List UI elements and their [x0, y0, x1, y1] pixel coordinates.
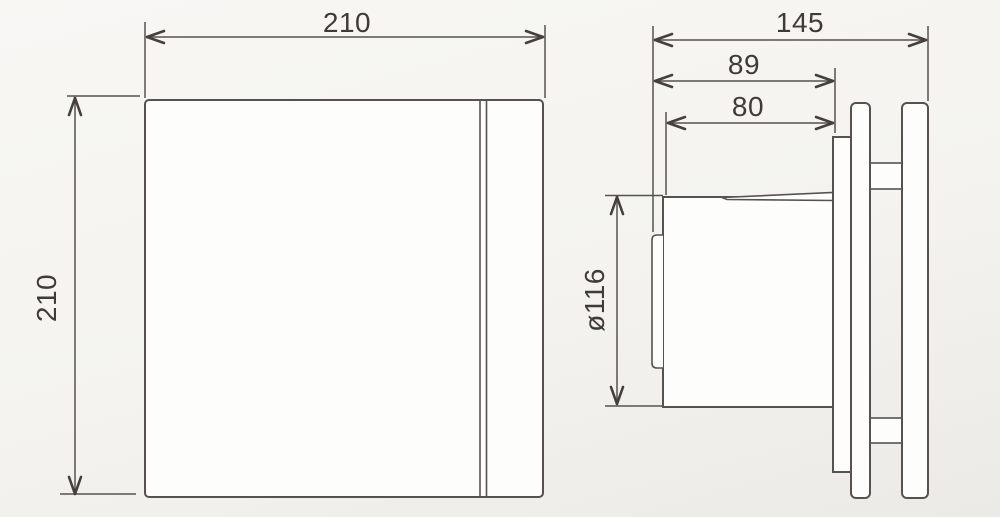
front-width-dimension: 210 — [145, 7, 545, 98]
mounting-plate — [851, 103, 870, 498]
spigot-diameter-dimension: ø116 — [579, 196, 663, 407]
duct-spigot — [663, 197, 833, 407]
side-view: 145 89 80 — [579, 7, 928, 498]
front-view: 210 210 — [31, 7, 545, 497]
spigot-depth-dimension: 80 — [666, 91, 833, 195]
drawing-page: 210 210 — [0, 0, 1000, 517]
fan-body — [833, 137, 851, 472]
spigot-depth-label: 80 — [732, 91, 764, 122]
front-height-label: 210 — [31, 274, 62, 322]
duct-flange-tab — [652, 235, 663, 368]
panel-clip — [870, 163, 902, 189]
body-depth-label: 89 — [728, 49, 760, 80]
spigot-diameter-label: ø116 — [579, 268, 610, 332]
front-width-label: 210 — [323, 7, 371, 38]
overall-depth-label: 145 — [776, 7, 824, 38]
fan-dimension-drawing: 210 210 — [0, 0, 1000, 517]
panel-clip — [870, 418, 902, 443]
front-cover-panel — [902, 103, 928, 498]
damper-flap — [722, 193, 833, 201]
front-height-dimension: 210 — [31, 96, 140, 494]
front-panel-face — [145, 100, 543, 497]
